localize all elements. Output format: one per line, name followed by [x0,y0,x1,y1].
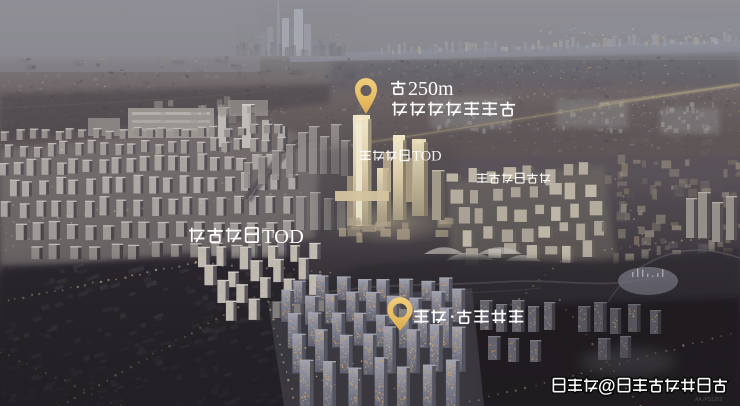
svg-text:250m: 250m [408,78,454,100]
svg-text:@: @ [598,376,616,396]
svg-text:AA./PS1202: AA./PS1202 [695,397,722,403]
svg-text:TOD: TOD [262,226,304,248]
svg-text:TOD: TOD [412,149,442,165]
